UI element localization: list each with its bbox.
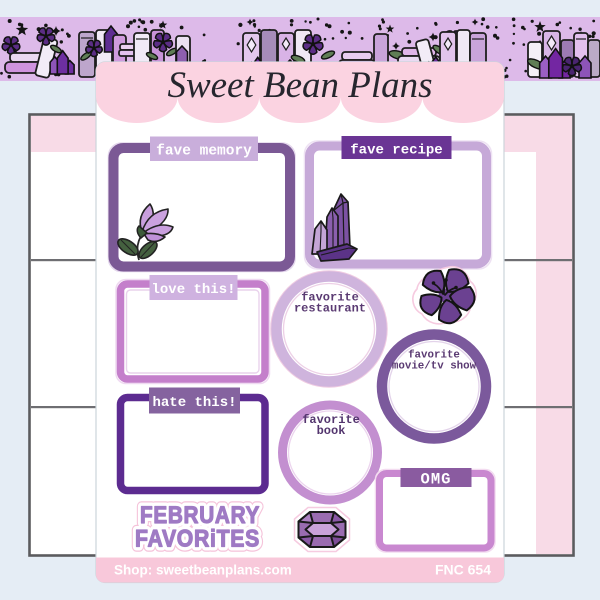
svg-text:restaurant: restaurant	[294, 302, 366, 316]
svg-text:fave memory: fave memory	[156, 144, 252, 160]
svg-text:Sweet Bean Plans: Sweet Bean Plans	[167, 65, 432, 106]
svg-text:movie/tv show: movie/tv show	[392, 361, 477, 373]
svg-text:Shop: sweetbeanplans.com: Shop: sweetbeanplans.com	[114, 563, 292, 578]
svg-text:love this!: love this!	[151, 282, 235, 298]
svg-text:hate this!: hate this!	[152, 395, 236, 411]
svg-text:fave recipe: fave recipe	[350, 143, 442, 159]
svg-text:book: book	[317, 424, 346, 438]
svg-text:FNC 654: FNC 654	[435, 562, 491, 578]
svg-text:FAVORiTES: FAVORiTES	[135, 526, 260, 553]
svg-text:OMG: OMG	[421, 471, 452, 489]
